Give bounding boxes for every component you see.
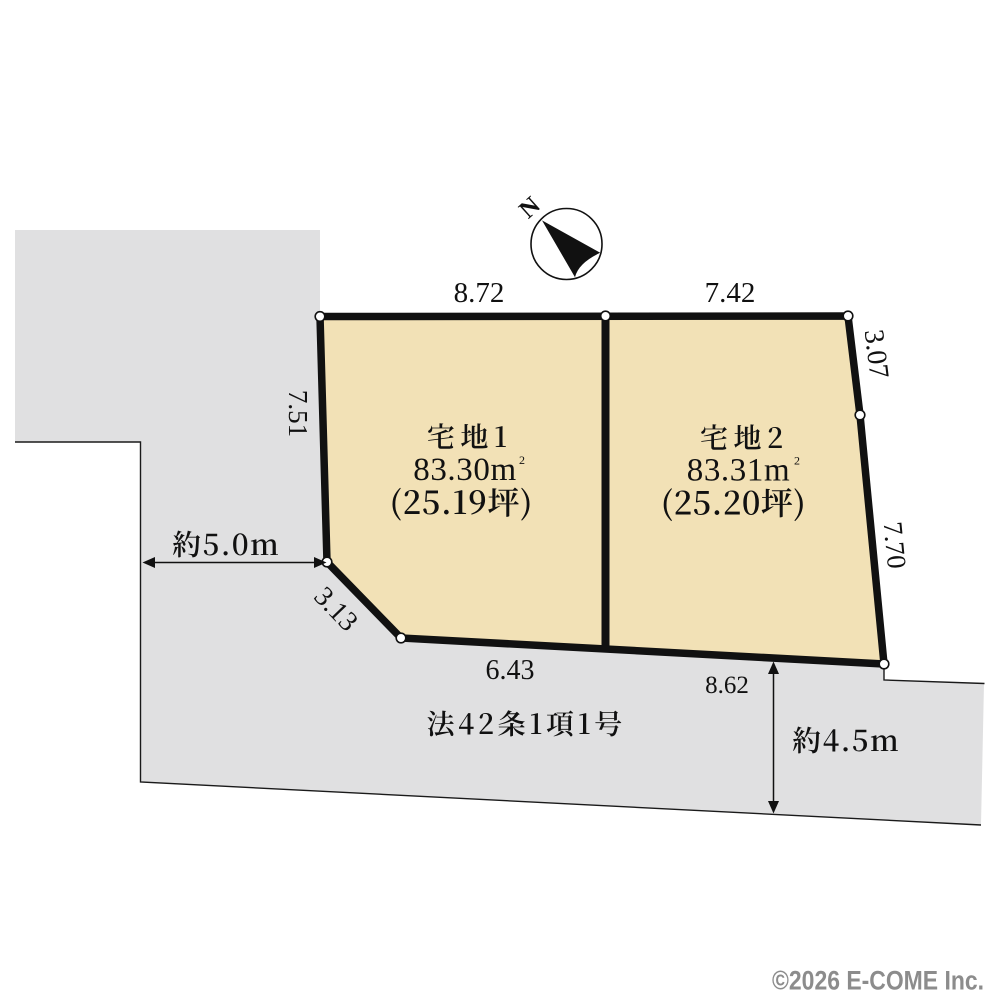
svg-text:©2026 E-COME Inc.: ©2026 E-COME Inc. <box>772 966 984 996</box>
svg-text:7.42: 7.42 <box>705 277 756 309</box>
svg-text:7.51: 7.51 <box>283 390 313 437</box>
svg-text:8.62: 8.62 <box>705 672 749 699</box>
svg-text:83.31m: 83.31m <box>687 453 791 489</box>
svg-text:2: 2 <box>794 454 800 468</box>
svg-text:7.70: 7.70 <box>878 520 912 570</box>
svg-text:3.07: 3.07 <box>858 328 895 380</box>
svg-text:8.72: 8.72 <box>454 277 505 309</box>
svg-text:2: 2 <box>519 453 525 467</box>
svg-text:83.30m: 83.30m <box>413 452 517 488</box>
svg-text:6.43: 6.43 <box>486 655 535 686</box>
